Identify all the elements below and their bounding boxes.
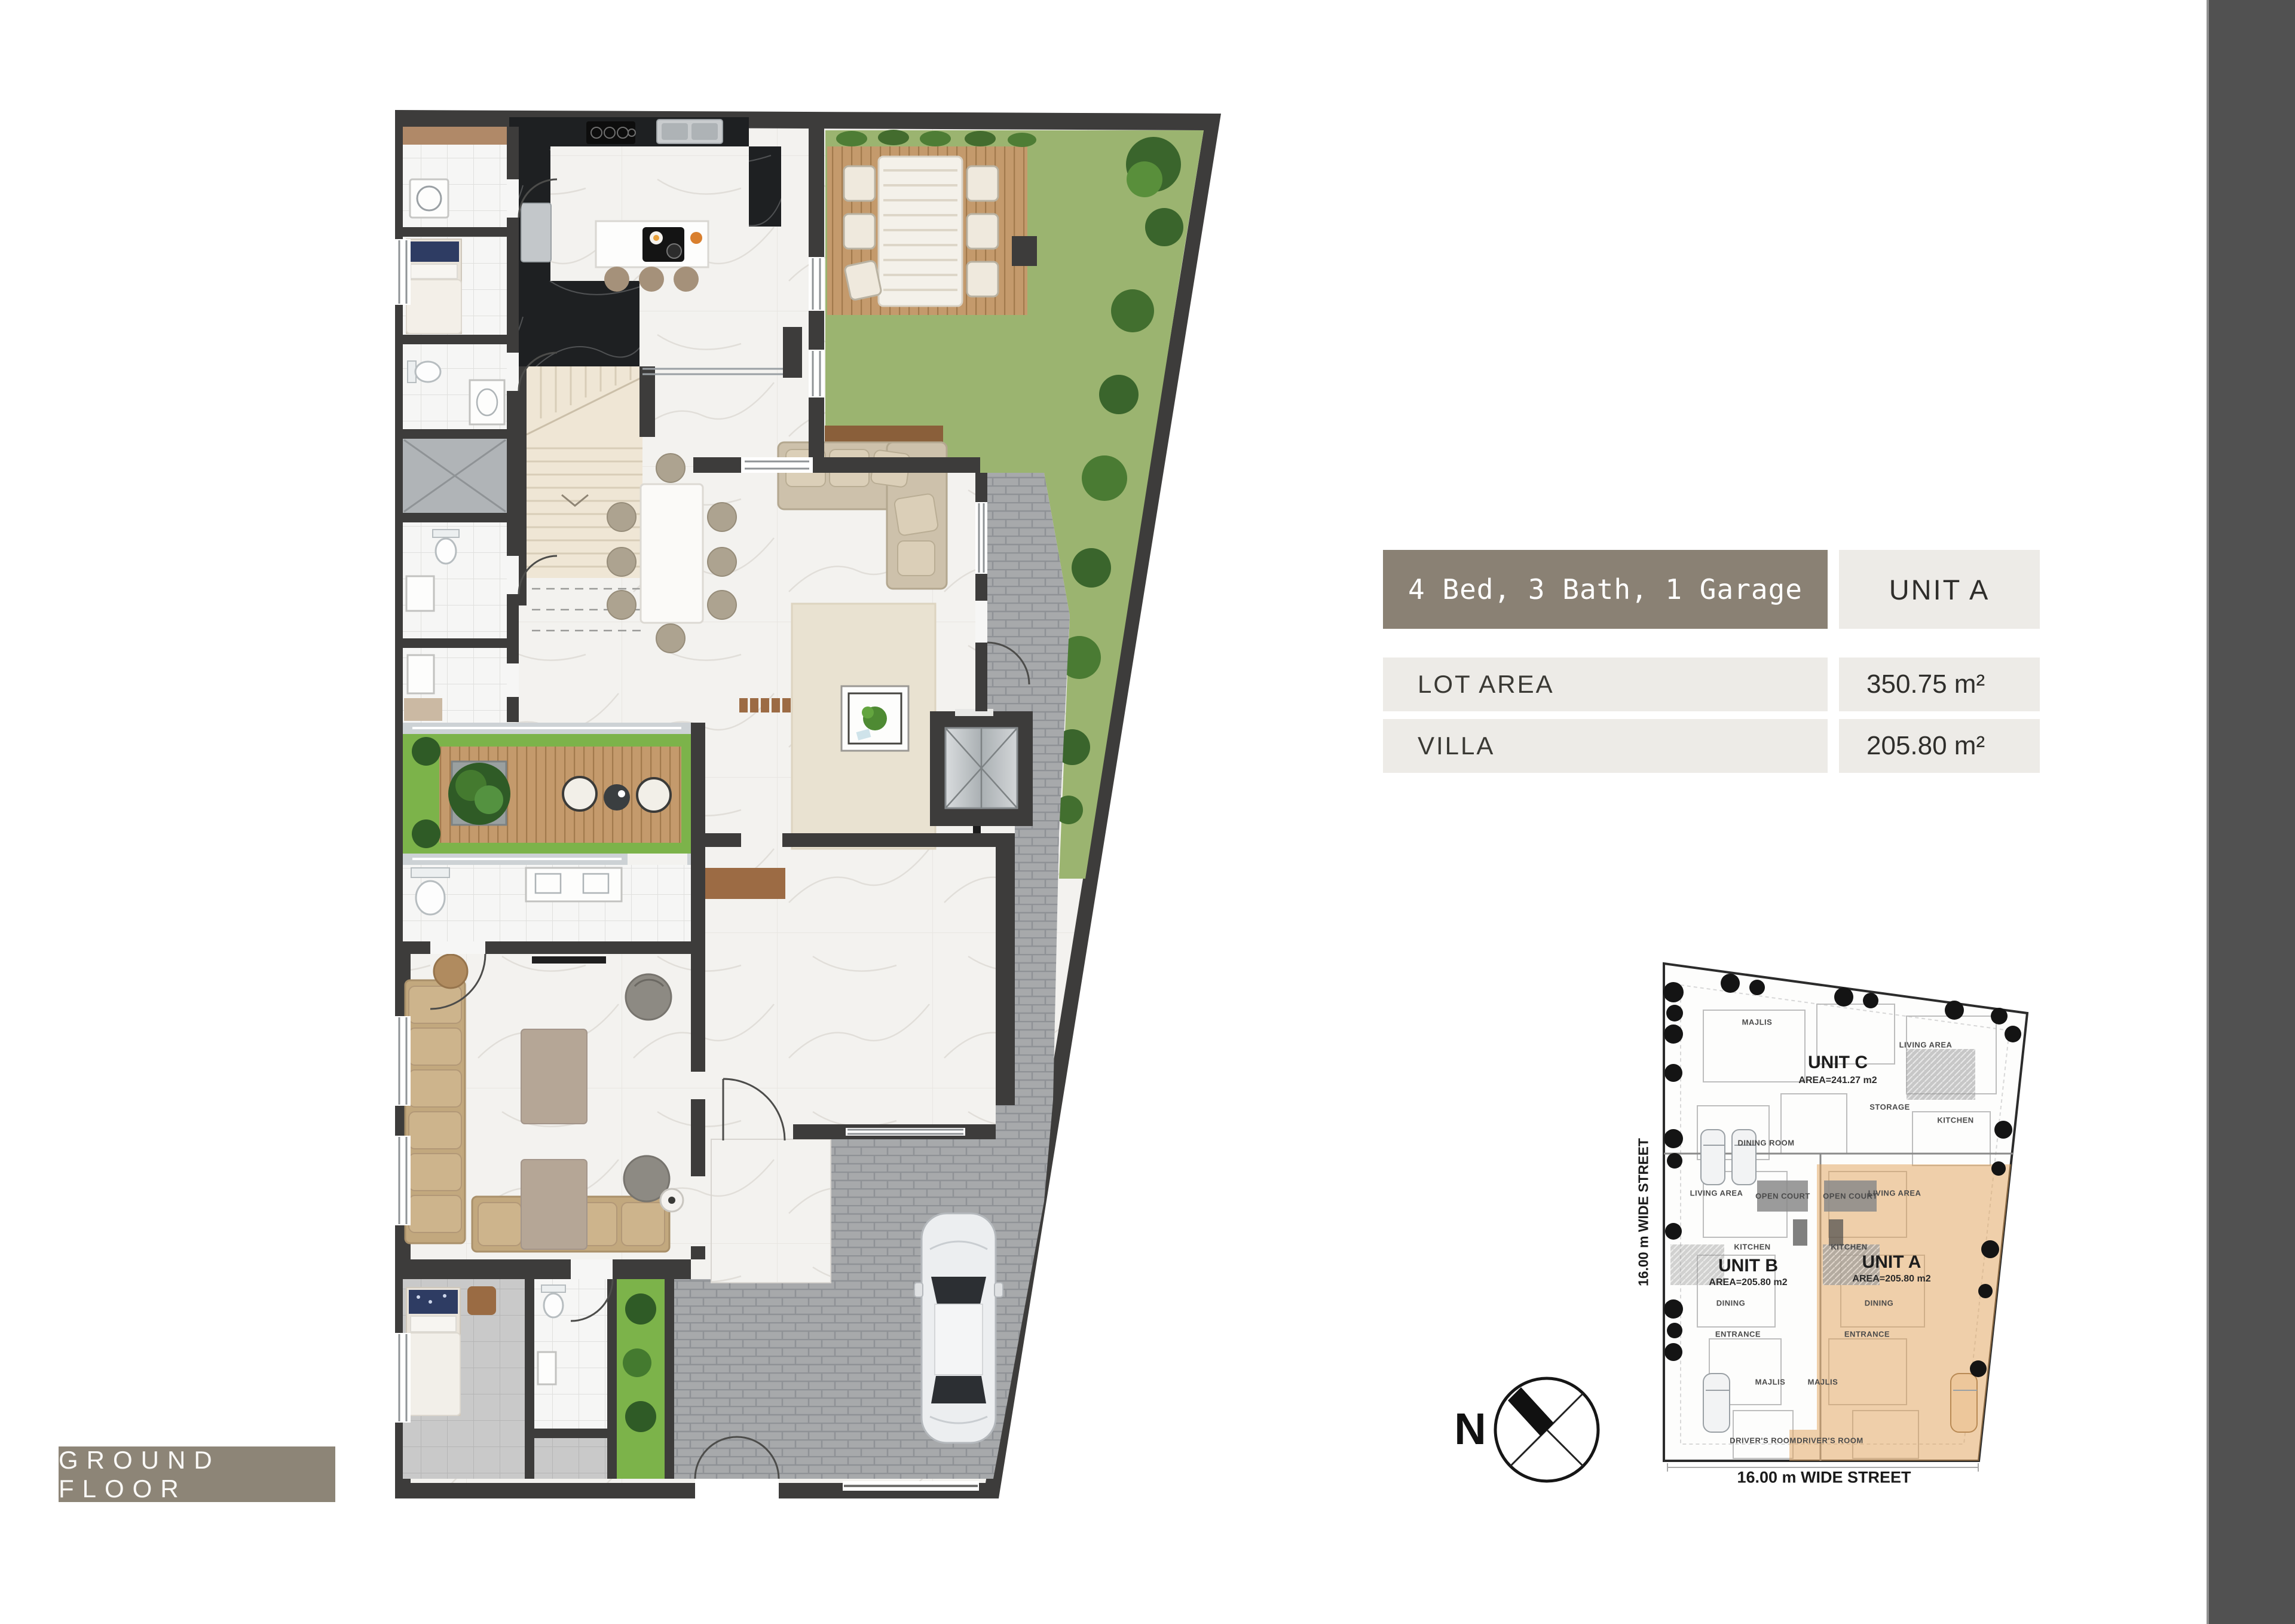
vanity [408, 655, 434, 693]
site-room-label: KITCHEN [1831, 1243, 1867, 1252]
site-room-label: LIVING AREA [1899, 1041, 1953, 1050]
table-label-lot-area: LOT AREA [1383, 657, 1828, 711]
site-room-label: ENTRANCE [1715, 1330, 1761, 1339]
courtyard [403, 723, 693, 865]
rug [521, 1160, 587, 1249]
patio-table [604, 784, 630, 811]
console-wood [825, 426, 943, 444]
double-vanity [526, 868, 622, 901]
armchair [626, 974, 671, 1020]
console-wood [702, 868, 785, 899]
tv [532, 956, 606, 964]
service-rooms [403, 127, 507, 723]
compass-n-label: N [1439, 1403, 1501, 1454]
site-unit-b-name: UNIT B [1718, 1256, 1778, 1276]
site-plan-mini [1663, 964, 2027, 1472]
site-unit-c-name: UNIT C [1808, 1053, 1868, 1073]
stool [467, 1286, 496, 1315]
site-room-label: OPEN COURT [1823, 1192, 1878, 1201]
site-room-label: DINING [1865, 1299, 1894, 1308]
car [914, 1213, 1003, 1443]
side-table [434, 955, 467, 988]
floor-badge: GROUND FLOOR [59, 1446, 335, 1502]
toilet [436, 539, 456, 564]
site-room-label: OPEN COURT [1755, 1192, 1810, 1201]
floor-plan-graphic [0, 0, 2295, 1624]
washer [410, 179, 448, 218]
table-header-specs: 4 Bed, 3 Bath, 1 Garage [1383, 550, 1828, 629]
street-label-bottom: 16.00 m WIDE STREET [1737, 1469, 1911, 1487]
driver-bed [406, 1287, 460, 1415]
toilet [544, 1293, 563, 1317]
street-label-left: 16.00 m WIDE STREET [1636, 1138, 1652, 1286]
site-room-label: MAJLIS [1808, 1378, 1838, 1387]
site-room-label: KITCHEN [1734, 1243, 1770, 1252]
vanity [470, 380, 504, 424]
entry-path [711, 1139, 831, 1283]
fridge [521, 203, 551, 262]
brochure-page: { "info_table": { "header_specs": "4 Bed… [0, 0, 2295, 1624]
site-unit-a-name: UNIT A [1862, 1252, 1921, 1273]
page-right-band [2207, 0, 2295, 1624]
vanity [406, 576, 434, 611]
table-label-villa: VILLA [1383, 719, 1828, 773]
table-value-villa: 205.80 m² [1839, 719, 2040, 773]
site-room-label: DINING ROOM [1737, 1139, 1794, 1148]
compass [1495, 1378, 1598, 1481]
site-unit-b-area: AREA=205.80 m2 [1709, 1277, 1787, 1288]
patio-chair [563, 777, 596, 811]
site-room-label: STORAGE [1869, 1103, 1910, 1112]
maid-bed [406, 239, 461, 334]
site-room-label: DINING [1716, 1299, 1746, 1308]
table-header-unit: UNIT A [1839, 550, 2040, 629]
site-room-label: KITCHEN [1937, 1116, 1973, 1125]
toilet [415, 362, 440, 382]
main-floor-plan [395, 110, 1221, 1498]
toilet [416, 881, 445, 915]
patio-chair [637, 778, 671, 812]
elevator [930, 709, 1033, 826]
site-room-label: MAJLIS [1755, 1378, 1786, 1387]
site-room-label: DRIVER'S ROOM [1730, 1436, 1796, 1445]
site-unit-a-area: AREA=205.80 m2 [1852, 1274, 1930, 1284]
courtyard-tree [475, 785, 503, 814]
site-unit-c-area: AREA=241.27 m2 [1798, 1075, 1877, 1086]
table-value-lot-area: 350.75 m² [1839, 657, 2040, 711]
unit-a-highlight [1789, 1164, 2011, 1461]
rug [521, 1029, 587, 1124]
laundry-counter [403, 127, 507, 145]
vanity [538, 1352, 556, 1384]
site-room-label: MAJLIS [1742, 1018, 1773, 1027]
site-room-label: ENTRANCE [1844, 1330, 1890, 1339]
site-room-label: DRIVER'S ROOM [1797, 1436, 1863, 1445]
site-room-label: LIVING AREA [1690, 1189, 1743, 1198]
